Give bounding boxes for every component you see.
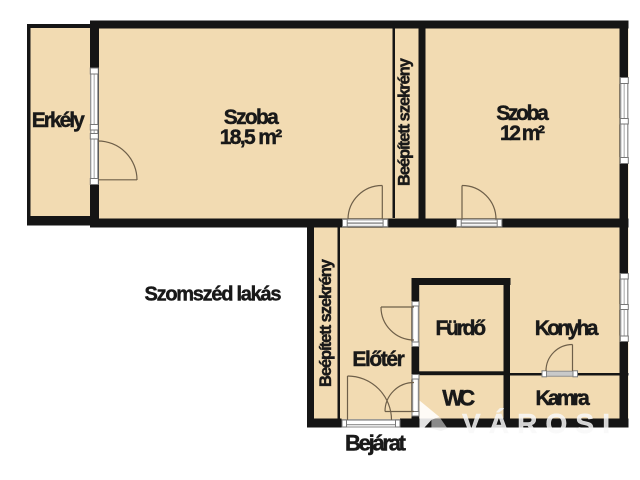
svg-text:Kamra: Kamra (536, 387, 591, 410)
svg-text:WC: WC (442, 386, 475, 411)
svg-text:12 m²: 12 m² (500, 122, 545, 145)
svg-text:Szomszéd lakás: Szomszéd lakás (145, 284, 282, 306)
svg-text:Beépített szekrény: Beépített szekrény (317, 258, 335, 387)
svg-text:Konyha: Konyha (535, 317, 599, 340)
svg-text:Előtér: Előtér (352, 348, 405, 371)
svg-text:Fürdő: Fürdő (436, 317, 487, 340)
svg-text:18,5 m²: 18,5 m² (220, 126, 283, 149)
svg-text:Bejárat: Bejárat (345, 431, 407, 456)
svg-text:Beépített szekrény: Beépített szekrény (396, 57, 414, 186)
svg-text:Erkély: Erkély (32, 109, 85, 132)
